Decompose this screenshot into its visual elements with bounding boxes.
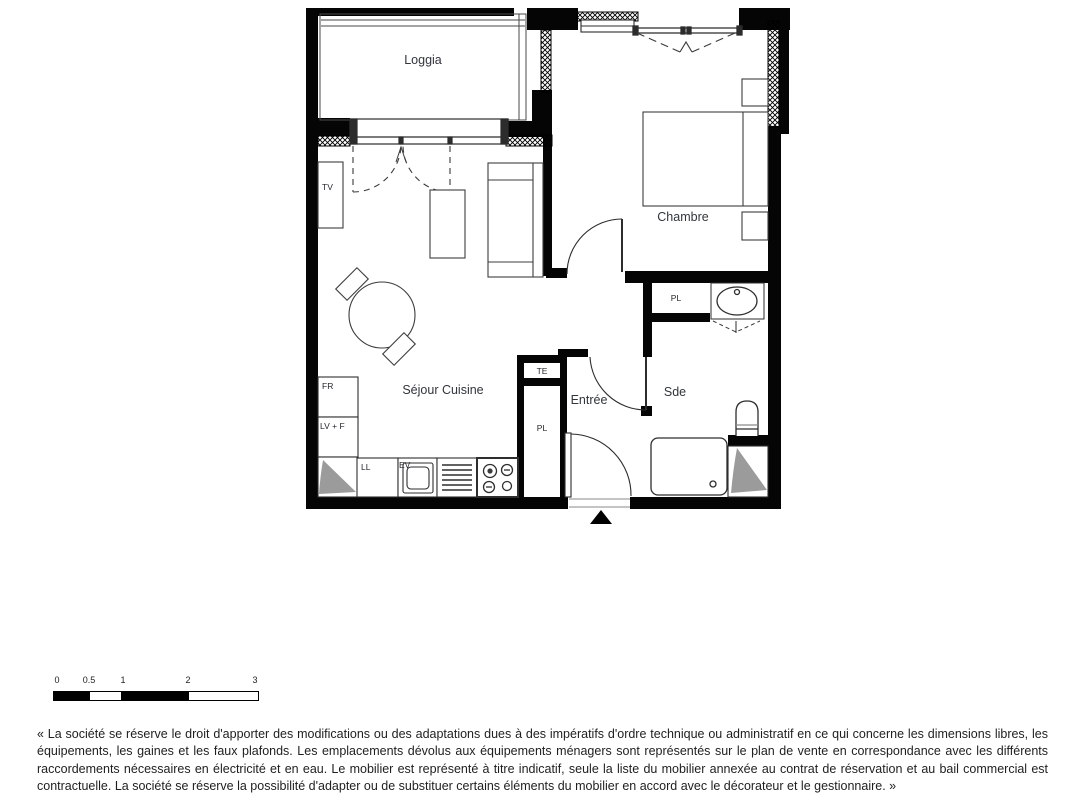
wall-gaine-top [728, 435, 768, 446]
scale-tick: 2 [185, 675, 190, 685]
legal-disclaimer: « La société se réserve le droit d'appor… [37, 726, 1048, 796]
wall-top-center [527, 8, 578, 30]
wall-sejour-chambre [543, 137, 552, 276]
floor-plan-drawing: Loggia Chambre Séjour Cuisine Entrée Sde… [0, 0, 1084, 660]
label-fridge: FR [322, 381, 333, 391]
chambre-main-window [633, 26, 742, 35]
scale-bar-segments [53, 691, 259, 701]
chambre-door-swing [567, 219, 622, 274]
scale-segment [89, 692, 121, 700]
scale-tick: 0.5 [83, 675, 96, 685]
chambre-small-window [581, 20, 634, 32]
french-door-window [350, 119, 508, 144]
french-door-swing [353, 144, 450, 192]
wall-loggia-top [318, 8, 514, 16]
entrance-door-swing [571, 434, 631, 496]
label-closet-entree: PL [537, 423, 548, 433]
label-tv: TV [322, 182, 333, 192]
wall-loggia-sill-left [318, 118, 350, 136]
wall-column-divider [517, 378, 567, 386]
wall-closet-bottom [643, 313, 710, 322]
shower-drain [710, 481, 716, 487]
scale-bar: 0 0.5 1 2 3 [53, 675, 258, 703]
scale-tick: 1 [120, 675, 125, 685]
scale-segment [54, 692, 89, 700]
drainer-box [437, 458, 477, 497]
wall-bottom-left [306, 497, 568, 509]
hatch-sill-left [318, 136, 350, 146]
bed [643, 112, 768, 206]
side-table [430, 190, 465, 258]
bedside-table-top [742, 79, 768, 106]
cooktop [477, 458, 518, 497]
toilet [736, 401, 758, 436]
wall-right-lower [768, 134, 781, 509]
wall-loggia-chambre [532, 90, 552, 137]
wall-bottom-right [630, 497, 781, 509]
tv-unit [318, 162, 343, 228]
scale-tick: 3 [252, 675, 257, 685]
scale-segment [121, 692, 188, 700]
chambre-window-swing [637, 33, 735, 52]
label-closet-chambre: PL [671, 293, 682, 303]
hatch-chambre-left [541, 30, 551, 92]
floor-plan-page: Loggia Chambre Séjour Cuisine Entrée Sde… [0, 0, 1084, 800]
wall-chambre-door-stub [546, 268, 567, 278]
loggia-floor [320, 14, 526, 120]
label-sejour-cuisine: Séjour Cuisine [402, 383, 483, 397]
scale-segment [188, 692, 258, 700]
hatch-sill-right [506, 135, 552, 146]
wall-left [306, 8, 318, 509]
scale-tick: 0 [54, 675, 59, 685]
wall-right-upper [779, 8, 789, 134]
label-sink: EV [399, 460, 411, 470]
sink-inner [407, 467, 429, 489]
doors [565, 219, 646, 507]
hatch-right [768, 21, 779, 127]
wall-column-top [517, 355, 567, 363]
label-sde: Sde [664, 385, 686, 399]
entrance-door-leaf [565, 433, 571, 497]
loggia-railing [320, 14, 526, 120]
label-loggia: Loggia [404, 53, 442, 67]
bedside-table-bottom [742, 212, 768, 240]
label-electrical-panel: TE [537, 366, 548, 376]
label-dishwasher-oven: LV + F [320, 421, 345, 431]
entrance-arrow [590, 510, 612, 524]
basin-faucet [735, 290, 740, 295]
label-chambre: Chambre [657, 210, 708, 224]
label-entree: Entrée [571, 393, 608, 407]
label-washer: LL [361, 462, 371, 472]
